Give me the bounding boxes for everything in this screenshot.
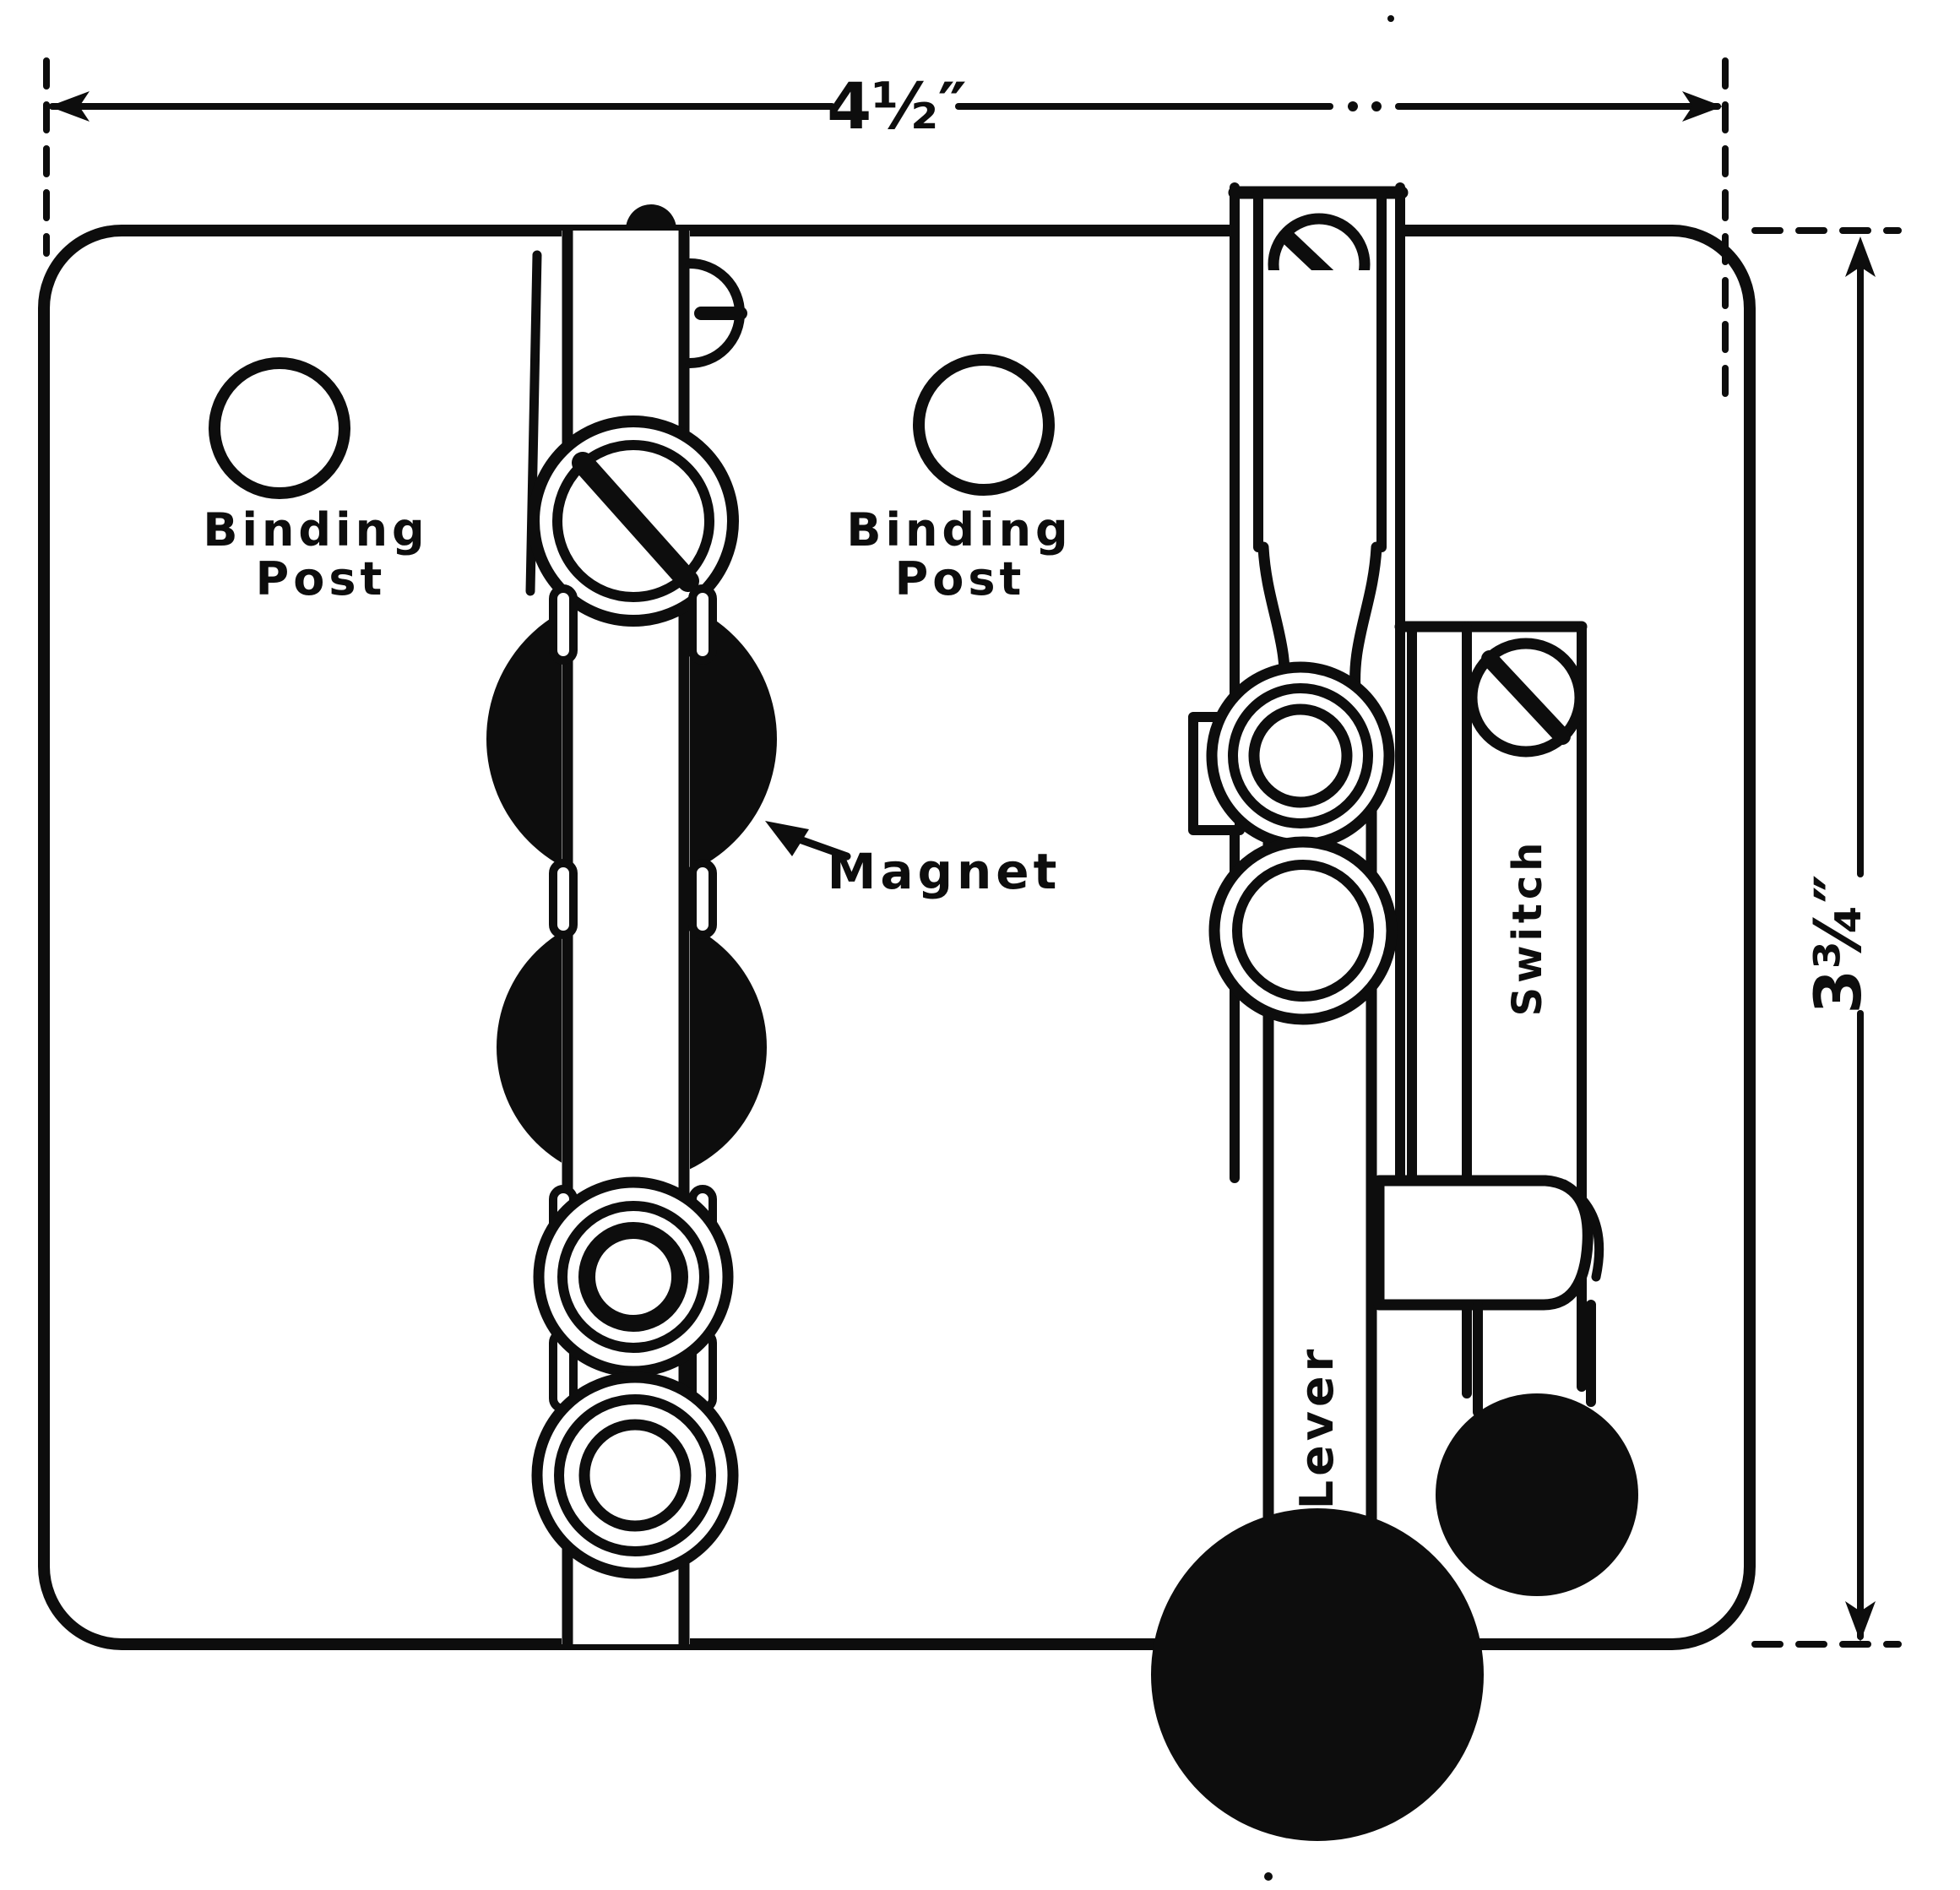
contact-washer-lower bbox=[537, 1377, 733, 1573]
cross-bar bbox=[1379, 1181, 1588, 1305]
dash-dot bbox=[1371, 101, 1382, 111]
binding-post-right: Binding Post bbox=[846, 360, 1072, 606]
speck bbox=[1387, 15, 1394, 22]
magnet-label: Magnet bbox=[828, 843, 1061, 900]
lever-label: Lever bbox=[1290, 1345, 1344, 1510]
binding-post-right-label-line1: Binding bbox=[846, 503, 1072, 557]
washer-ring-outer bbox=[1212, 667, 1389, 845]
frame-slot bbox=[553, 863, 573, 935]
magnet-callout: Magnet bbox=[765, 821, 1061, 900]
telegraph-key-plan-diagram: 4½″ 3¾″ Binding Post Binding Post bbox=[0, 0, 1960, 1890]
switch-label: Switch bbox=[1504, 839, 1551, 1017]
dash-dot bbox=[1348, 101, 1358, 111]
frame-slot bbox=[553, 589, 573, 660]
width-dimension-label: 4½″ bbox=[827, 68, 967, 144]
lever-washer-lower bbox=[1214, 842, 1392, 1019]
contact-washer-upper bbox=[539, 1182, 728, 1371]
switch-knob bbox=[1436, 1393, 1638, 1596]
binding-post-hole bbox=[919, 360, 1049, 490]
sounder-assembly bbox=[486, 204, 777, 1644]
height-dimension-label: 3¾″ bbox=[1800, 874, 1876, 1014]
binding-post-left-label-line1: Binding bbox=[203, 503, 428, 557]
callout-arrowhead-icon bbox=[765, 821, 809, 856]
frame-slot bbox=[692, 863, 713, 935]
lever-washer-upper bbox=[1212, 667, 1389, 845]
binding-post-left-label-line2: Post bbox=[256, 552, 387, 606]
switch-assembly: Switch bbox=[1379, 627, 1599, 1412]
key-lever-assembly: Lever bbox=[1193, 187, 1402, 1529]
lever-knob bbox=[1151, 1508, 1484, 1841]
binding-post-right-label-line2: Post bbox=[895, 552, 1026, 606]
dimension-height: 3¾″ bbox=[1755, 231, 1898, 1644]
figure-page: 4½″ 3¾″ Binding Post Binding Post bbox=[0, 0, 1960, 1890]
binding-post-left: Binding Post bbox=[203, 363, 428, 606]
top-screw-head bbox=[626, 204, 676, 230]
washer-ring-outer bbox=[537, 1377, 733, 1573]
speck bbox=[1264, 1872, 1273, 1881]
binding-post-hole bbox=[214, 363, 345, 493]
frame-slot bbox=[692, 589, 713, 660]
